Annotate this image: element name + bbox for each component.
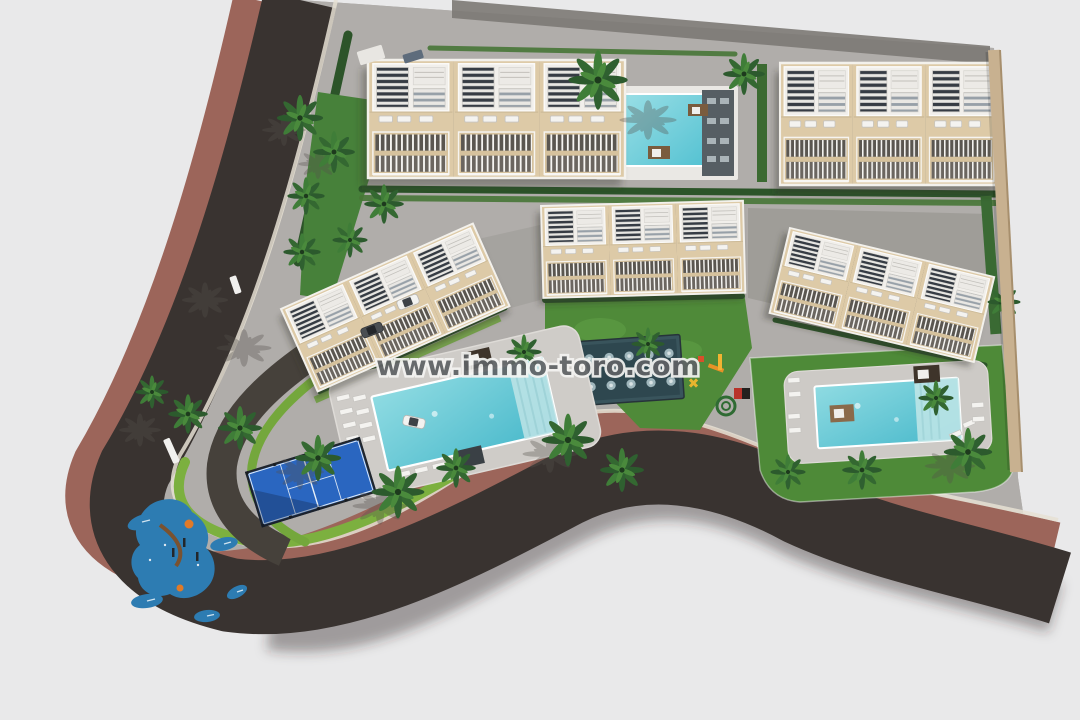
site-plan-rendering: www.immo-toro.com <box>0 0 1080 720</box>
palm-shadow <box>182 282 228 317</box>
palm-tree <box>372 466 425 519</box>
palm-tree <box>568 50 627 109</box>
palm-tree <box>600 448 644 492</box>
palm-tree <box>295 435 341 481</box>
aerial-render-canvas: www.immo-toro.com <box>0 0 1080 720</box>
building-top-right <box>775 63 998 194</box>
dark-deck <box>702 90 734 176</box>
palm-tree <box>944 428 992 476</box>
palm-tree <box>332 222 367 257</box>
watermark-text: www.immo-toro.com <box>376 351 699 382</box>
palm-tree <box>436 448 476 488</box>
palm-tree <box>218 406 262 450</box>
palm-tree <box>168 394 208 434</box>
palm-tree <box>313 131 355 173</box>
palm-tree <box>287 177 324 214</box>
palm-shadow <box>217 329 272 366</box>
building-middle <box>536 201 745 305</box>
palm-tree <box>918 380 953 415</box>
palm-tree <box>277 95 323 141</box>
palm-tree <box>283 233 320 270</box>
play-structure-cap <box>185 520 194 529</box>
palm-tree <box>364 184 404 224</box>
palm-tree <box>842 450 882 490</box>
palm-shadow <box>619 100 676 140</box>
palm-tree <box>723 53 765 95</box>
palm-shadow <box>119 414 161 447</box>
palm-tree <box>542 414 595 467</box>
palm-tree <box>770 454 805 489</box>
palm-tree <box>136 376 169 409</box>
